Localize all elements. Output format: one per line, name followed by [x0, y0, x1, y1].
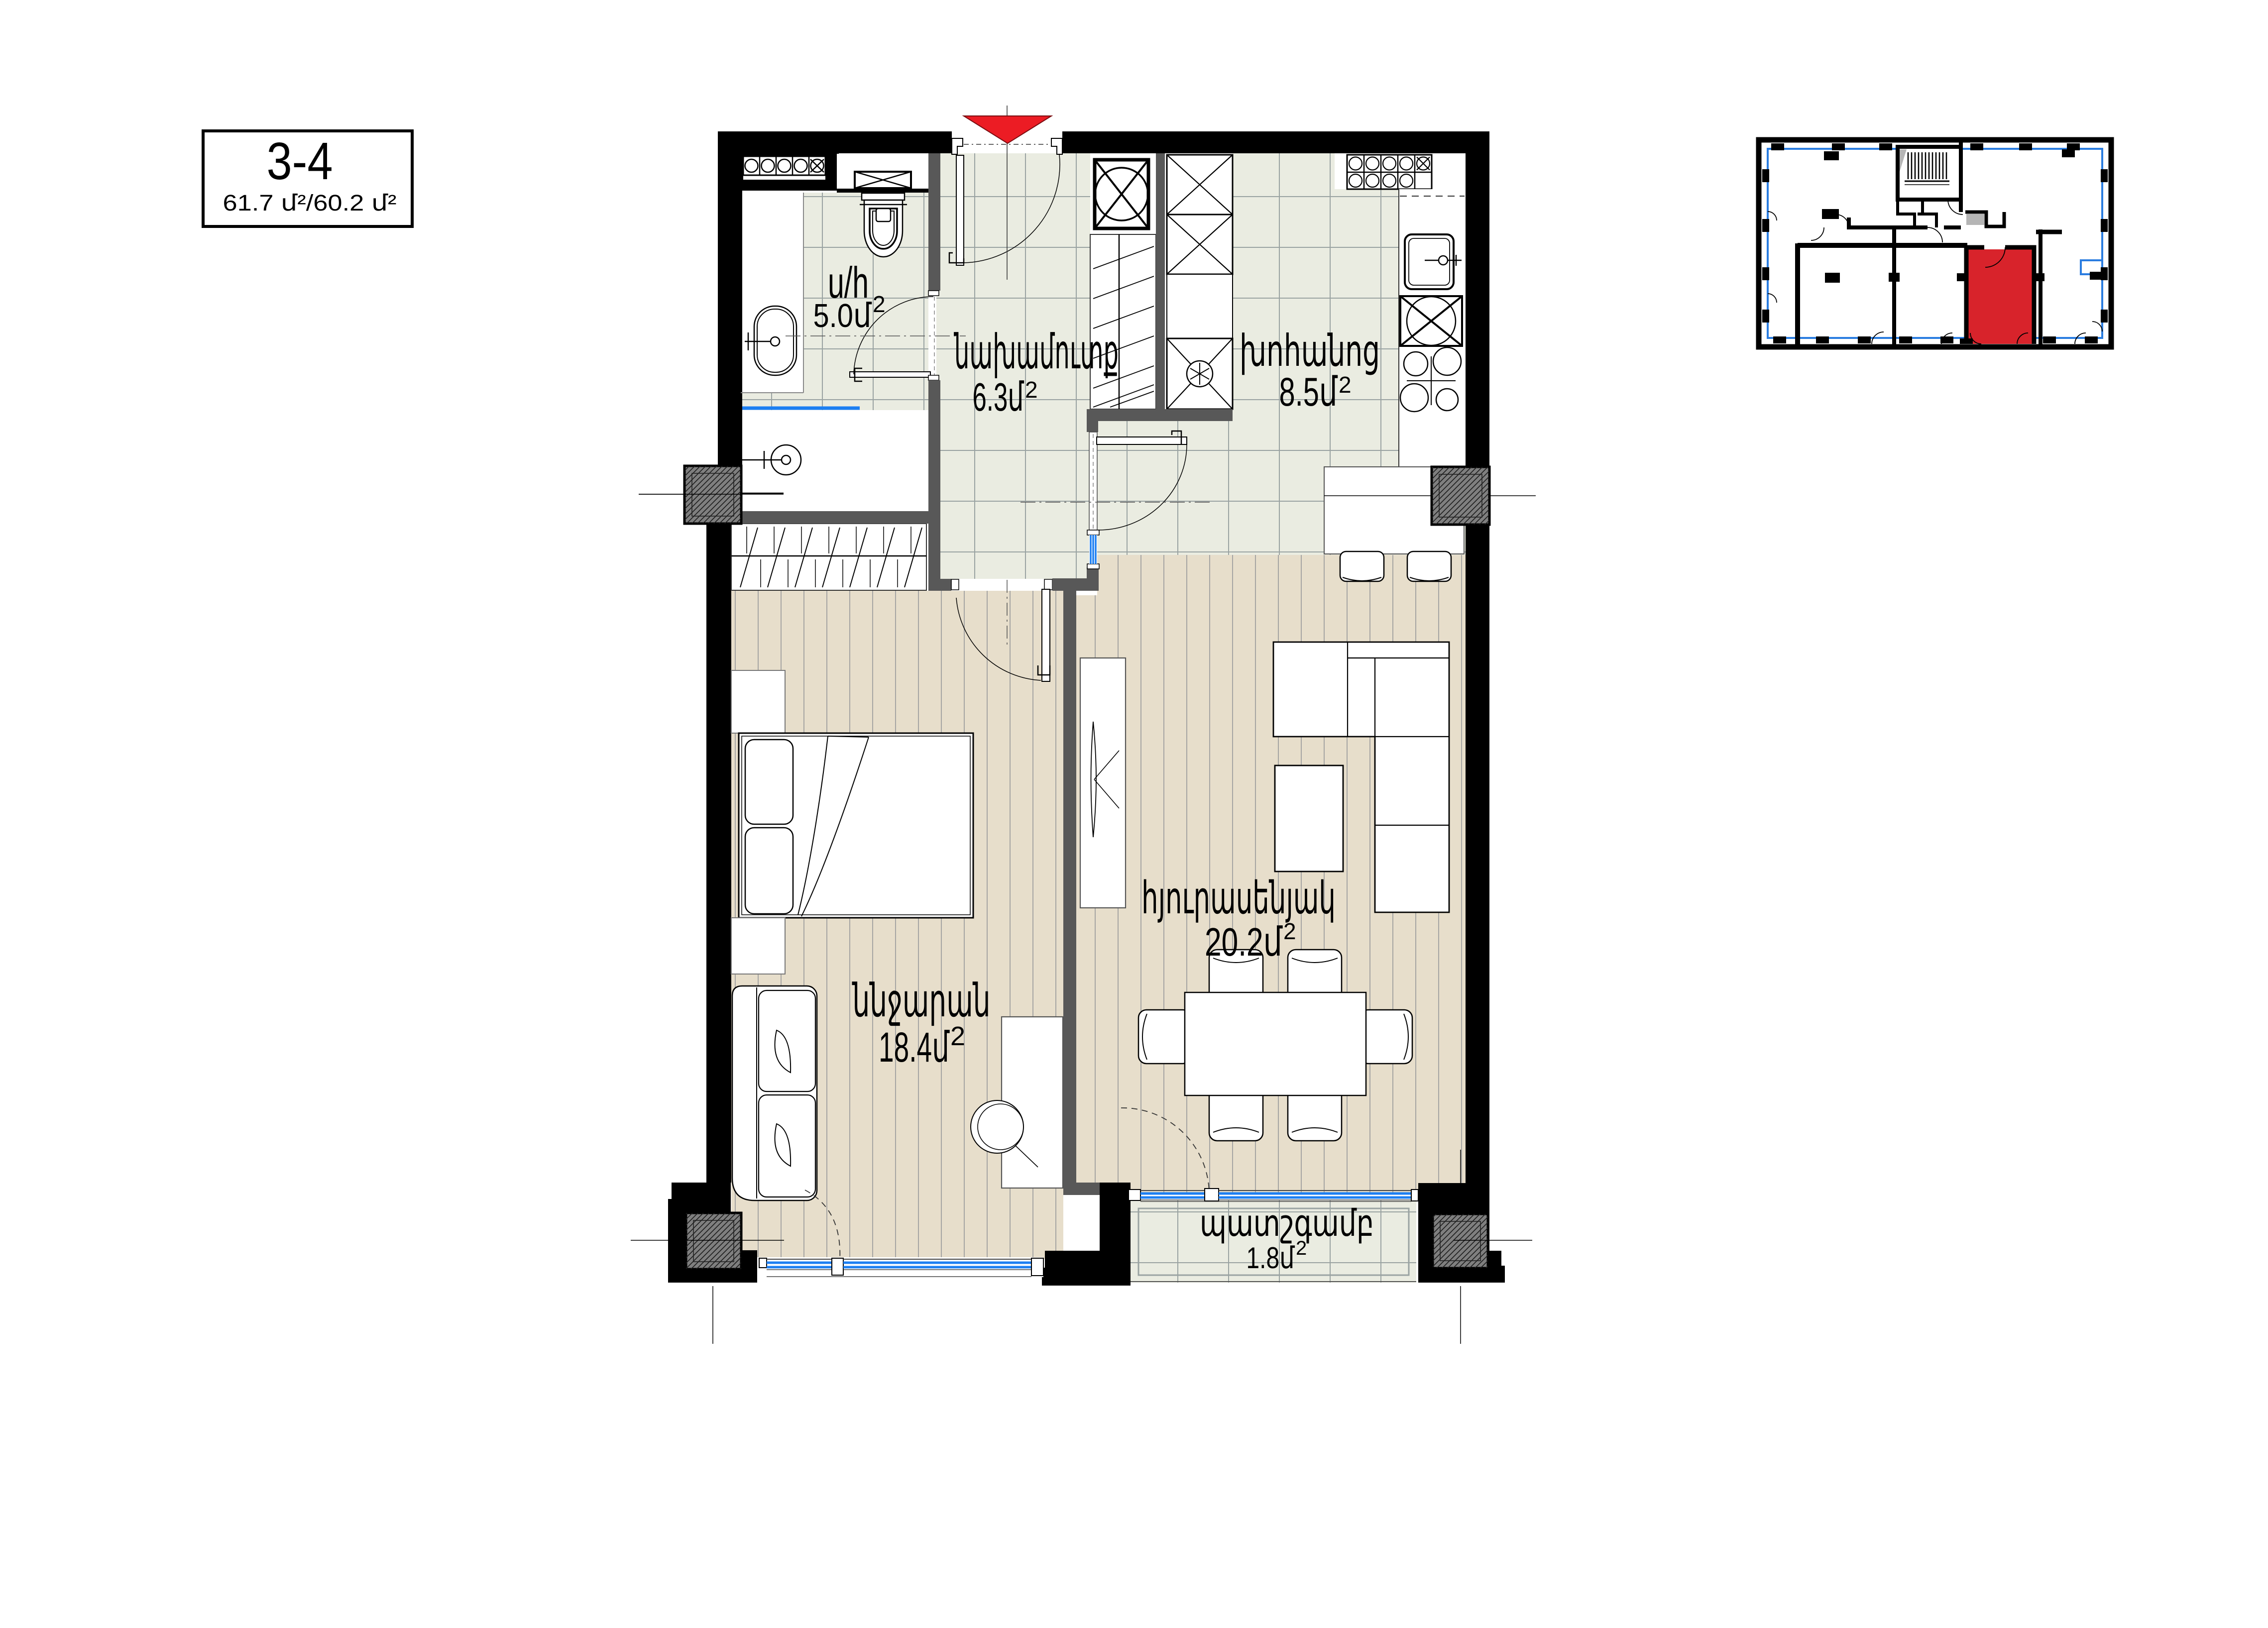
svg-text:20.2մ: 20.2մ [1205, 920, 1283, 964]
svg-text:պատշգամբ: պատշգամբ [1200, 1202, 1374, 1244]
svg-text:6.3մ: 6.3մ [973, 375, 1024, 419]
svg-text:2: 2 [1025, 377, 1038, 403]
svg-text:նախամուտք: նախամուտք [954, 326, 1119, 379]
svg-text:ննջարան: ննջարան [852, 976, 990, 1026]
svg-text:հյուրասենյակ: հյուրասենյակ [1141, 873, 1336, 923]
svg-text:1.8մ: 1.8մ [1247, 1241, 1295, 1275]
svg-text:2: 2 [873, 291, 886, 317]
svg-text:18.4մ: 18.4մ [879, 1024, 950, 1071]
svg-text:2: 2 [1283, 918, 1296, 944]
svg-text:3-4: 3-4 [267, 132, 333, 191]
svg-text:2: 2 [1339, 372, 1352, 398]
svg-text:61.7 մ²/60.2 մ²: 61.7 մ²/60.2 մ² [223, 190, 397, 216]
svg-text:8.5մ: 8.5մ [1279, 370, 1338, 415]
svg-text:2: 2 [950, 1021, 965, 1051]
svg-text:խոհանոց: խոհանոց [1240, 326, 1380, 375]
svg-text:5.0մ: 5.0մ [813, 297, 872, 334]
svg-text:2: 2 [1296, 1237, 1307, 1259]
